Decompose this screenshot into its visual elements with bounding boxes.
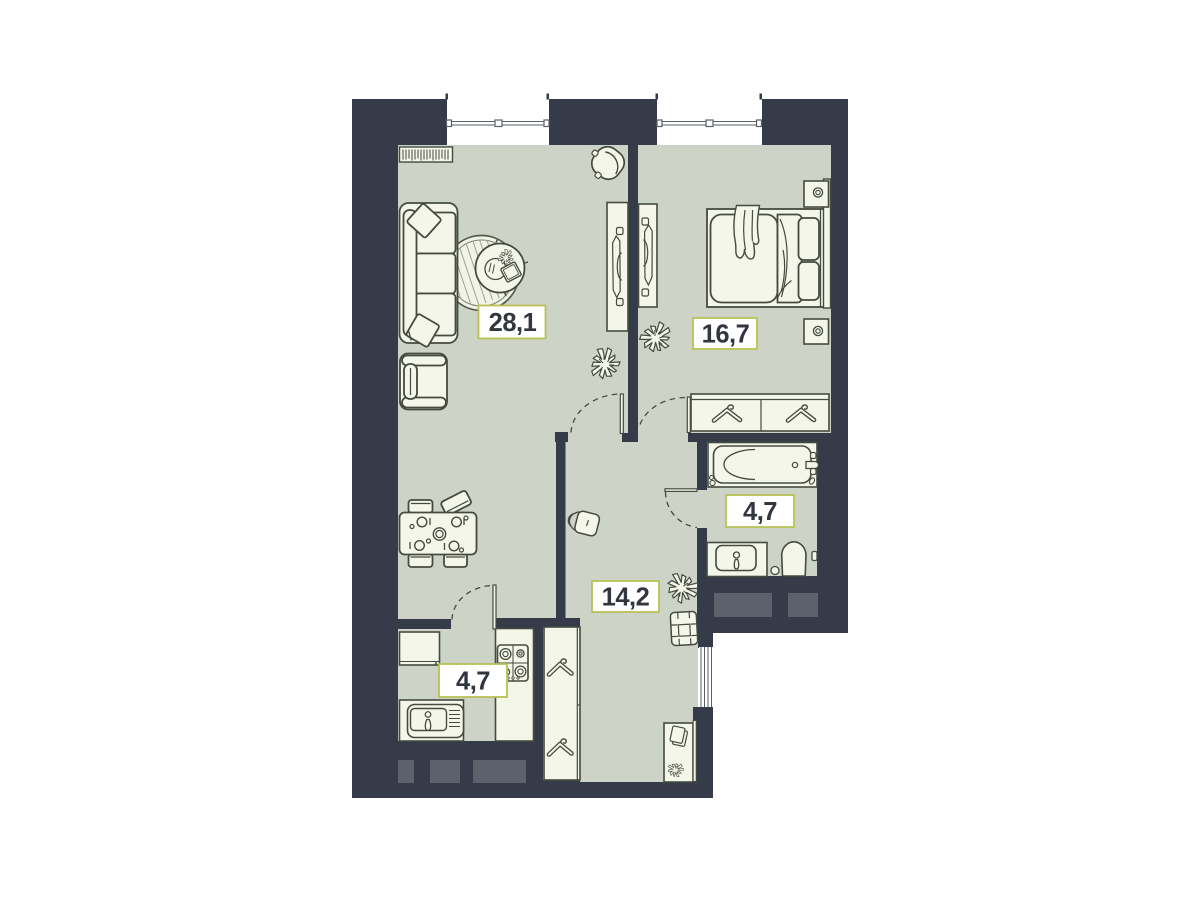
svg-text:4,7: 4,7: [743, 498, 777, 526]
svg-text:28,1: 28,1: [489, 309, 537, 337]
svg-text:4,7: 4,7: [456, 668, 490, 696]
svg-text:14,2: 14,2: [602, 584, 650, 612]
svg-text:16,7: 16,7: [702, 321, 750, 349]
